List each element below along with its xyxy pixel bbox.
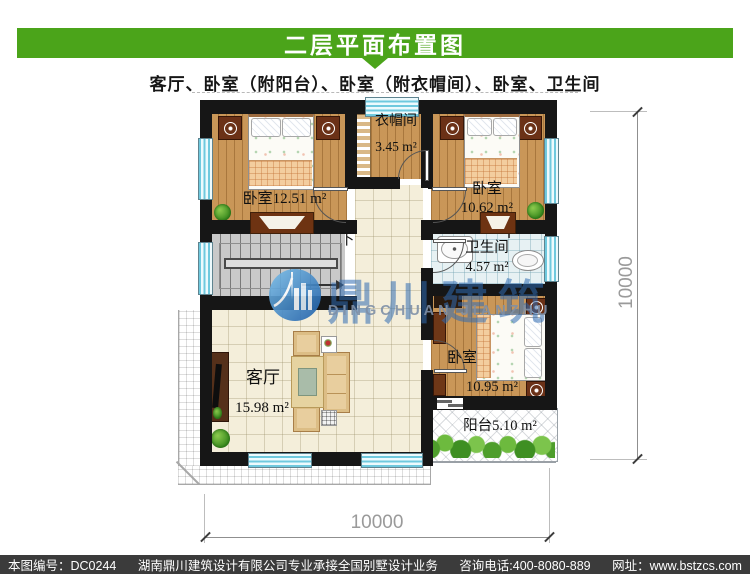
wall: [421, 370, 433, 396]
room-area-bedroom-br: 10.95 m²: [453, 380, 531, 395]
window: [198, 138, 213, 200]
dimension-value-bottom: 10000: [339, 512, 415, 534]
side-table: [321, 410, 337, 426]
drawing-number: 本图编号：DC0244: [8, 555, 116, 574]
phone: 咨询电话:400-8080-889: [459, 555, 590, 574]
door-leaf: [425, 150, 429, 181]
pillow: [467, 118, 492, 136]
bay-window-sill: [259, 216, 305, 229]
nightstand: [519, 116, 542, 140]
room-area-living: 15.98 m²: [216, 401, 308, 417]
wall: [421, 234, 433, 240]
room-label-bedroom-tl: 卧室12.51 m²: [222, 192, 347, 208]
plant: [527, 202, 544, 219]
bay-window: [250, 212, 314, 234]
window: [198, 242, 213, 295]
room-label-bedroom-tr: 卧室: [452, 182, 522, 198]
nightstand: [316, 116, 340, 140]
title-pointer: [362, 58, 388, 69]
room-area-bedroom-tr: 10.62 m²: [447, 201, 527, 216]
door-leaf: [434, 369, 467, 373]
floor-plan-page: 二层平面布置图 客厅、卧室（附阳台）、卧室（附衣帽间）、卧室、卫生间: [0, 0, 750, 574]
room-label-cloakroom: 衣帽间: [368, 115, 424, 130]
room-label-living: 客厅: [232, 369, 294, 387]
sliding-door-panel: [448, 404, 463, 407]
terrace: [178, 466, 431, 485]
pillow: [251, 118, 281, 137]
watermark-logo-icon: [266, 266, 324, 324]
watermark-en-text: DINGCHUAN JIANZHU: [328, 303, 551, 319]
sofa: [323, 352, 350, 413]
website: 网址：www.bstzcs.com: [612, 555, 742, 574]
sliding-door-panel: [437, 400, 452, 403]
pillow: [282, 118, 311, 137]
window: [248, 453, 312, 468]
balcony-edge-line: [424, 461, 556, 463]
nightstand: [218, 116, 242, 140]
flower: [324, 339, 332, 347]
bay-window-sill: [486, 216, 510, 229]
extension-line: [549, 468, 550, 543]
window: [361, 453, 423, 468]
plant: [211, 429, 230, 448]
room-area-cloakroom: 3.45 m²: [368, 140, 424, 154]
window: [544, 138, 559, 204]
pillow: [493, 118, 517, 136]
footer-bar: 本图编号：DC0244 湖南鼎川建筑设计有限公司专业承接全国别墅设计业务 咨询电…: [0, 555, 750, 574]
coffee-table-top: [298, 368, 317, 396]
dimension-value-right: 10000: [616, 257, 638, 309]
page-title: 二层平面布置图: [284, 26, 466, 60]
roof-overhang-line: [192, 92, 578, 93]
terrace: [178, 310, 201, 466]
stairs-down-label: 下: [336, 233, 358, 249]
watermark-cn-text: 鼎川建筑: [327, 264, 555, 333]
nightstand: [440, 116, 464, 140]
room-label-bathroom: 卫生间: [446, 241, 528, 256]
wall: [345, 100, 357, 188]
bed-blanket: [249, 160, 312, 186]
pillow: [524, 348, 542, 378]
dimension-line: [205, 537, 550, 538]
wall: [345, 177, 400, 189]
room-label-bedroom-br: 卧室: [437, 351, 487, 367]
title-bar: 二层平面布置图: [17, 28, 733, 58]
armchair: [293, 331, 320, 356]
room-label-balcony: 阳台5.10 m²: [452, 419, 548, 434]
company-name: 湖南鼎川建筑设计有限公司专业承接全国别墅设计业务: [138, 555, 438, 574]
wardrobe: [433, 374, 446, 396]
